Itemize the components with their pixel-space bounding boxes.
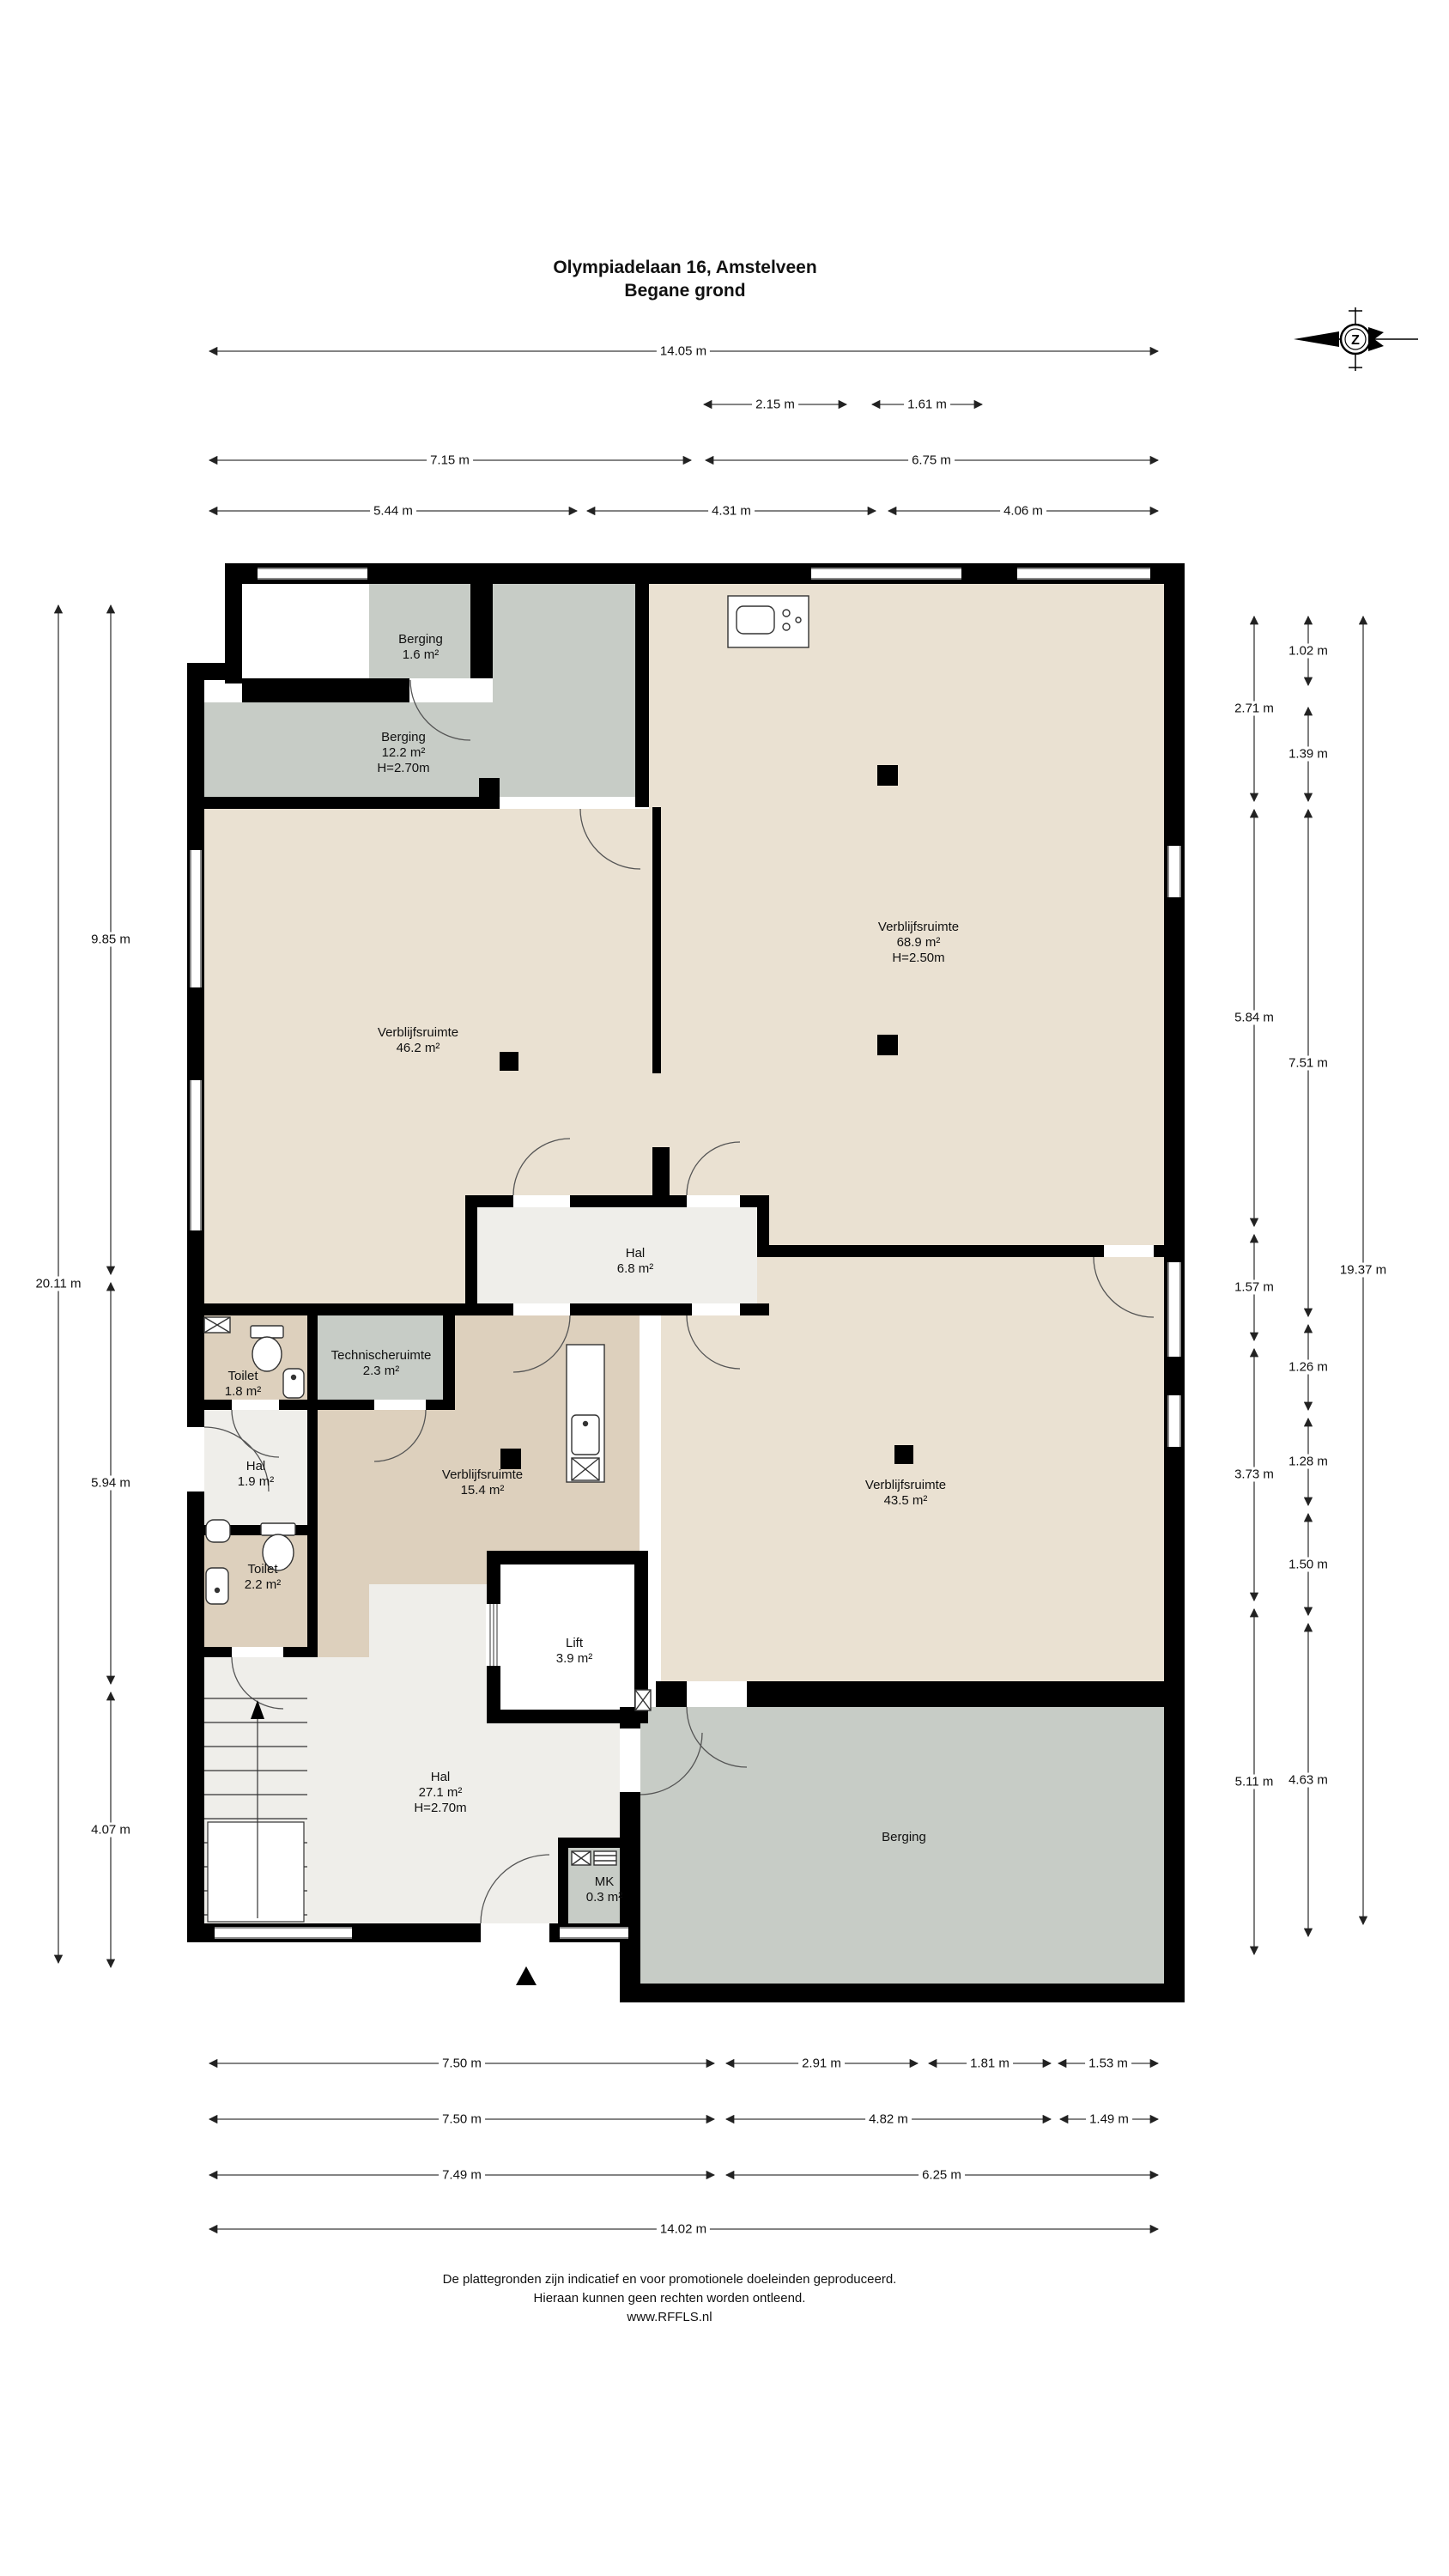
door-gap-hal68-top-1: [513, 1195, 570, 1207]
dim-right-6: 1.39 m: [1285, 747, 1331, 762]
window-left-2: [190, 1080, 202, 1230]
dim-right-5: 1.02 m: [1285, 644, 1331, 659]
floorplan-page: Olympiadelaan 16, Amstelveen Begane gron…: [0, 0, 1449, 2576]
label-hal-27-1: Hal27.1 m²H=2.70m: [414, 1770, 466, 1816]
compass-needle: [1294, 331, 1339, 347]
dim-top-2: 1.61 m: [904, 398, 950, 412]
compass-letter: Z: [1351, 333, 1360, 348]
dim-left-1: 5.94 m: [88, 1476, 134, 1491]
wall-hal68-right: [757, 1195, 769, 1257]
window-right-2: [1167, 1262, 1181, 1357]
compass: Z: [1294, 307, 1418, 371]
wall-toilet18-right: [307, 1303, 318, 1410]
label-lift-3-9: Lift3.9 m²: [556, 1636, 593, 1667]
window-top-3: [1017, 568, 1150, 580]
label-verblijf-43-5: Verblijfsruimte43.5 m²: [865, 1478, 946, 1509]
dim-bottom-2: 1.81 m: [967, 2057, 1013, 2071]
door-gap-toilet22: [232, 1647, 283, 1657]
dim-right-2: 1.57 m: [1231, 1280, 1277, 1295]
pillar-68-9-b: [877, 1035, 898, 1055]
dim-bottom-7: 7.49 m: [439, 2168, 485, 2183]
dim-bottom-5: 4.82 m: [865, 2112, 912, 2127]
wall-smallrooms-top: [203, 1303, 465, 1315]
dim-right-7: 7.51 m: [1285, 1056, 1331, 1071]
door-gap-43-5-right: [1104, 1245, 1154, 1257]
dim-right-8: 1.26 m: [1285, 1360, 1331, 1375]
pillar-46-2: [500, 1052, 518, 1071]
label-hal-1-9: Hal1.9 m²: [238, 1459, 275, 1490]
label-technische-2-3: Technischeruimte2.3 m²: [331, 1348, 432, 1379]
wall-stub-above-hal: [652, 1147, 670, 1202]
door-gap-technische: [374, 1400, 426, 1410]
dim-right-9: 1.28 m: [1285, 1455, 1331, 1469]
label-verblijf-46-2: Verblijfsruimte46.2 m²: [378, 1025, 458, 1056]
footer-disclaimer: De plattegronden zijn indicatief en voor…: [443, 2270, 897, 2327]
door-gap-lift: [487, 1604, 500, 1666]
label-verblijf-15-4: Verblijfsruimte15.4 m²: [442, 1467, 523, 1498]
pillar-43-5: [894, 1445, 913, 1464]
dim-right-10: 1.50 m: [1285, 1558, 1331, 1572]
wall-hal68-left: [465, 1195, 477, 1315]
dim-top-4: 6.75 m: [908, 453, 955, 468]
footer-line-3: www.RFFLS.nl: [443, 2308, 897, 2327]
wall-right-of-berging16: [470, 584, 493, 678]
room-storage-white: [242, 584, 369, 678]
dim-right-12: 19.37 m: [1337, 1263, 1390, 1278]
room-verblijf-68-9: [649, 584, 1164, 1245]
footer-line-1: De plattegronden zijn indicatief en voor…: [443, 2270, 897, 2289]
dim-left-2: 4.07 m: [88, 1823, 134, 1838]
entrance-arrow: [516, 1966, 537, 1985]
label-mk-0-3: MK0.3 m²: [586, 1874, 623, 1905]
dim-right-1: 5.84 m: [1231, 1011, 1277, 1025]
dim-top-7: 4.06 m: [1000, 504, 1046, 519]
dim-bottom-8: 6.25 m: [919, 2168, 965, 2183]
wall-lift-top: [487, 1551, 648, 1564]
page-title: Olympiadelaan 16, Amstelveen Begane gron…: [553, 256, 816, 302]
door-gap-berging-side: [620, 1728, 640, 1792]
dim-left-3: 20.11 m: [32, 1277, 84, 1291]
wall-lift-bottom: [487, 1710, 648, 1723]
window-top-1: [258, 568, 367, 580]
wall-toilet22-top: [203, 1525, 307, 1535]
door-gap-hal68-top-2: [687, 1195, 740, 1207]
dim-bottom-9: 14.02 m: [657, 2222, 710, 2237]
wall-divider-46-68: [652, 807, 661, 1073]
window-bottom-1: [215, 1927, 352, 1939]
label-verblijf-68-9: Verblijfsruimte68.9 m²H=2.50m: [878, 920, 959, 966]
room-berging-bottom: [640, 1707, 1164, 1984]
dim-bottom-6: 1.49 m: [1086, 2112, 1132, 2127]
dim-right-4: 5.11 m: [1232, 1775, 1277, 1789]
label-toilet-2-2: Toilet2.2 m²: [245, 1562, 282, 1593]
wall-berging-bottom: [620, 1984, 1185, 2002]
door-gap-toilet18: [232, 1400, 279, 1410]
window-bottom-2: [560, 1927, 628, 1939]
dim-top-0: 14.05 m: [657, 344, 710, 359]
window-left-1: [190, 850, 202, 987]
door-gap-side-entrance: [187, 1427, 204, 1492]
dim-bottom-1: 2.91 m: [798, 2057, 845, 2071]
dim-bottom-0: 7.50 m: [439, 2057, 485, 2071]
wall-corridor-68-divider: [635, 584, 649, 807]
wall-berging122-bottom: [203, 797, 500, 809]
title-address: Olympiadelaan 16, Amstelveen: [553, 256, 816, 279]
room-verblijf-43-5: [661, 1257, 1164, 1681]
dim-top-1: 2.15 m: [752, 398, 798, 412]
wall-stub-berging122: [479, 778, 500, 797]
window-right-1: [1167, 846, 1181, 897]
room-corridor-lift: [369, 1584, 487, 1657]
door-gap-berging16: [409, 678, 470, 702]
wall-toilet22-right: [307, 1525, 318, 1657]
window-right-3: [1167, 1395, 1181, 1447]
wall-tech-right: [443, 1303, 455, 1410]
wall-mk-top: [558, 1838, 640, 1848]
title-floor: Begane grond: [553, 279, 816, 302]
wall-hal19-right: [307, 1410, 318, 1535]
dim-top-6: 4.31 m: [708, 504, 755, 519]
door-gap-hal68-bottom-1: [513, 1303, 570, 1315]
label-berging-1-6: Berging1.6 m²: [398, 632, 443, 663]
dim-right-0: 2.71 m: [1231, 702, 1277, 716]
wall-lift-right: [634, 1551, 648, 1723]
label-berging-bottom: Berging: [882, 1830, 926, 1845]
door-gap-43-berging: [687, 1681, 747, 1707]
door-gap-hal68-bottom-2: [692, 1303, 740, 1315]
label-toilet-1-8: Toilet1.8 m²: [225, 1369, 262, 1400]
label-berging-12-2: Berging12.2 m²H=2.70m: [377, 730, 429, 776]
dim-right-3: 3.73 m: [1231, 1467, 1277, 1482]
dim-right-11: 4.63 m: [1285, 1773, 1331, 1788]
pillar-68-9-a: [877, 765, 898, 786]
compass-tail: [1368, 327, 1384, 351]
dim-bottom-4: 7.50 m: [439, 2112, 485, 2127]
pillar-15-4: [500, 1449, 521, 1469]
dim-bottom-3: 1.53 m: [1085, 2057, 1131, 2071]
label-hal-6-8: Hal6.8 m²: [617, 1246, 654, 1277]
room-berging-12-2: [204, 702, 500, 797]
door-gap-main-entrance: [481, 1923, 549, 1942]
room-berging-1-6: [369, 584, 470, 678]
dim-left-0: 9.85 m: [88, 933, 134, 947]
window-top-2: [811, 568, 961, 580]
dim-top-5: 5.44 m: [370, 504, 416, 519]
footer-line-2: Hieraan kunnen geen rechten worden ontle…: [443, 2289, 897, 2308]
wall-mk-left: [558, 1838, 568, 1923]
dim-top-3: 7.15 m: [427, 453, 473, 468]
room-corridor-gray: [493, 584, 635, 797]
